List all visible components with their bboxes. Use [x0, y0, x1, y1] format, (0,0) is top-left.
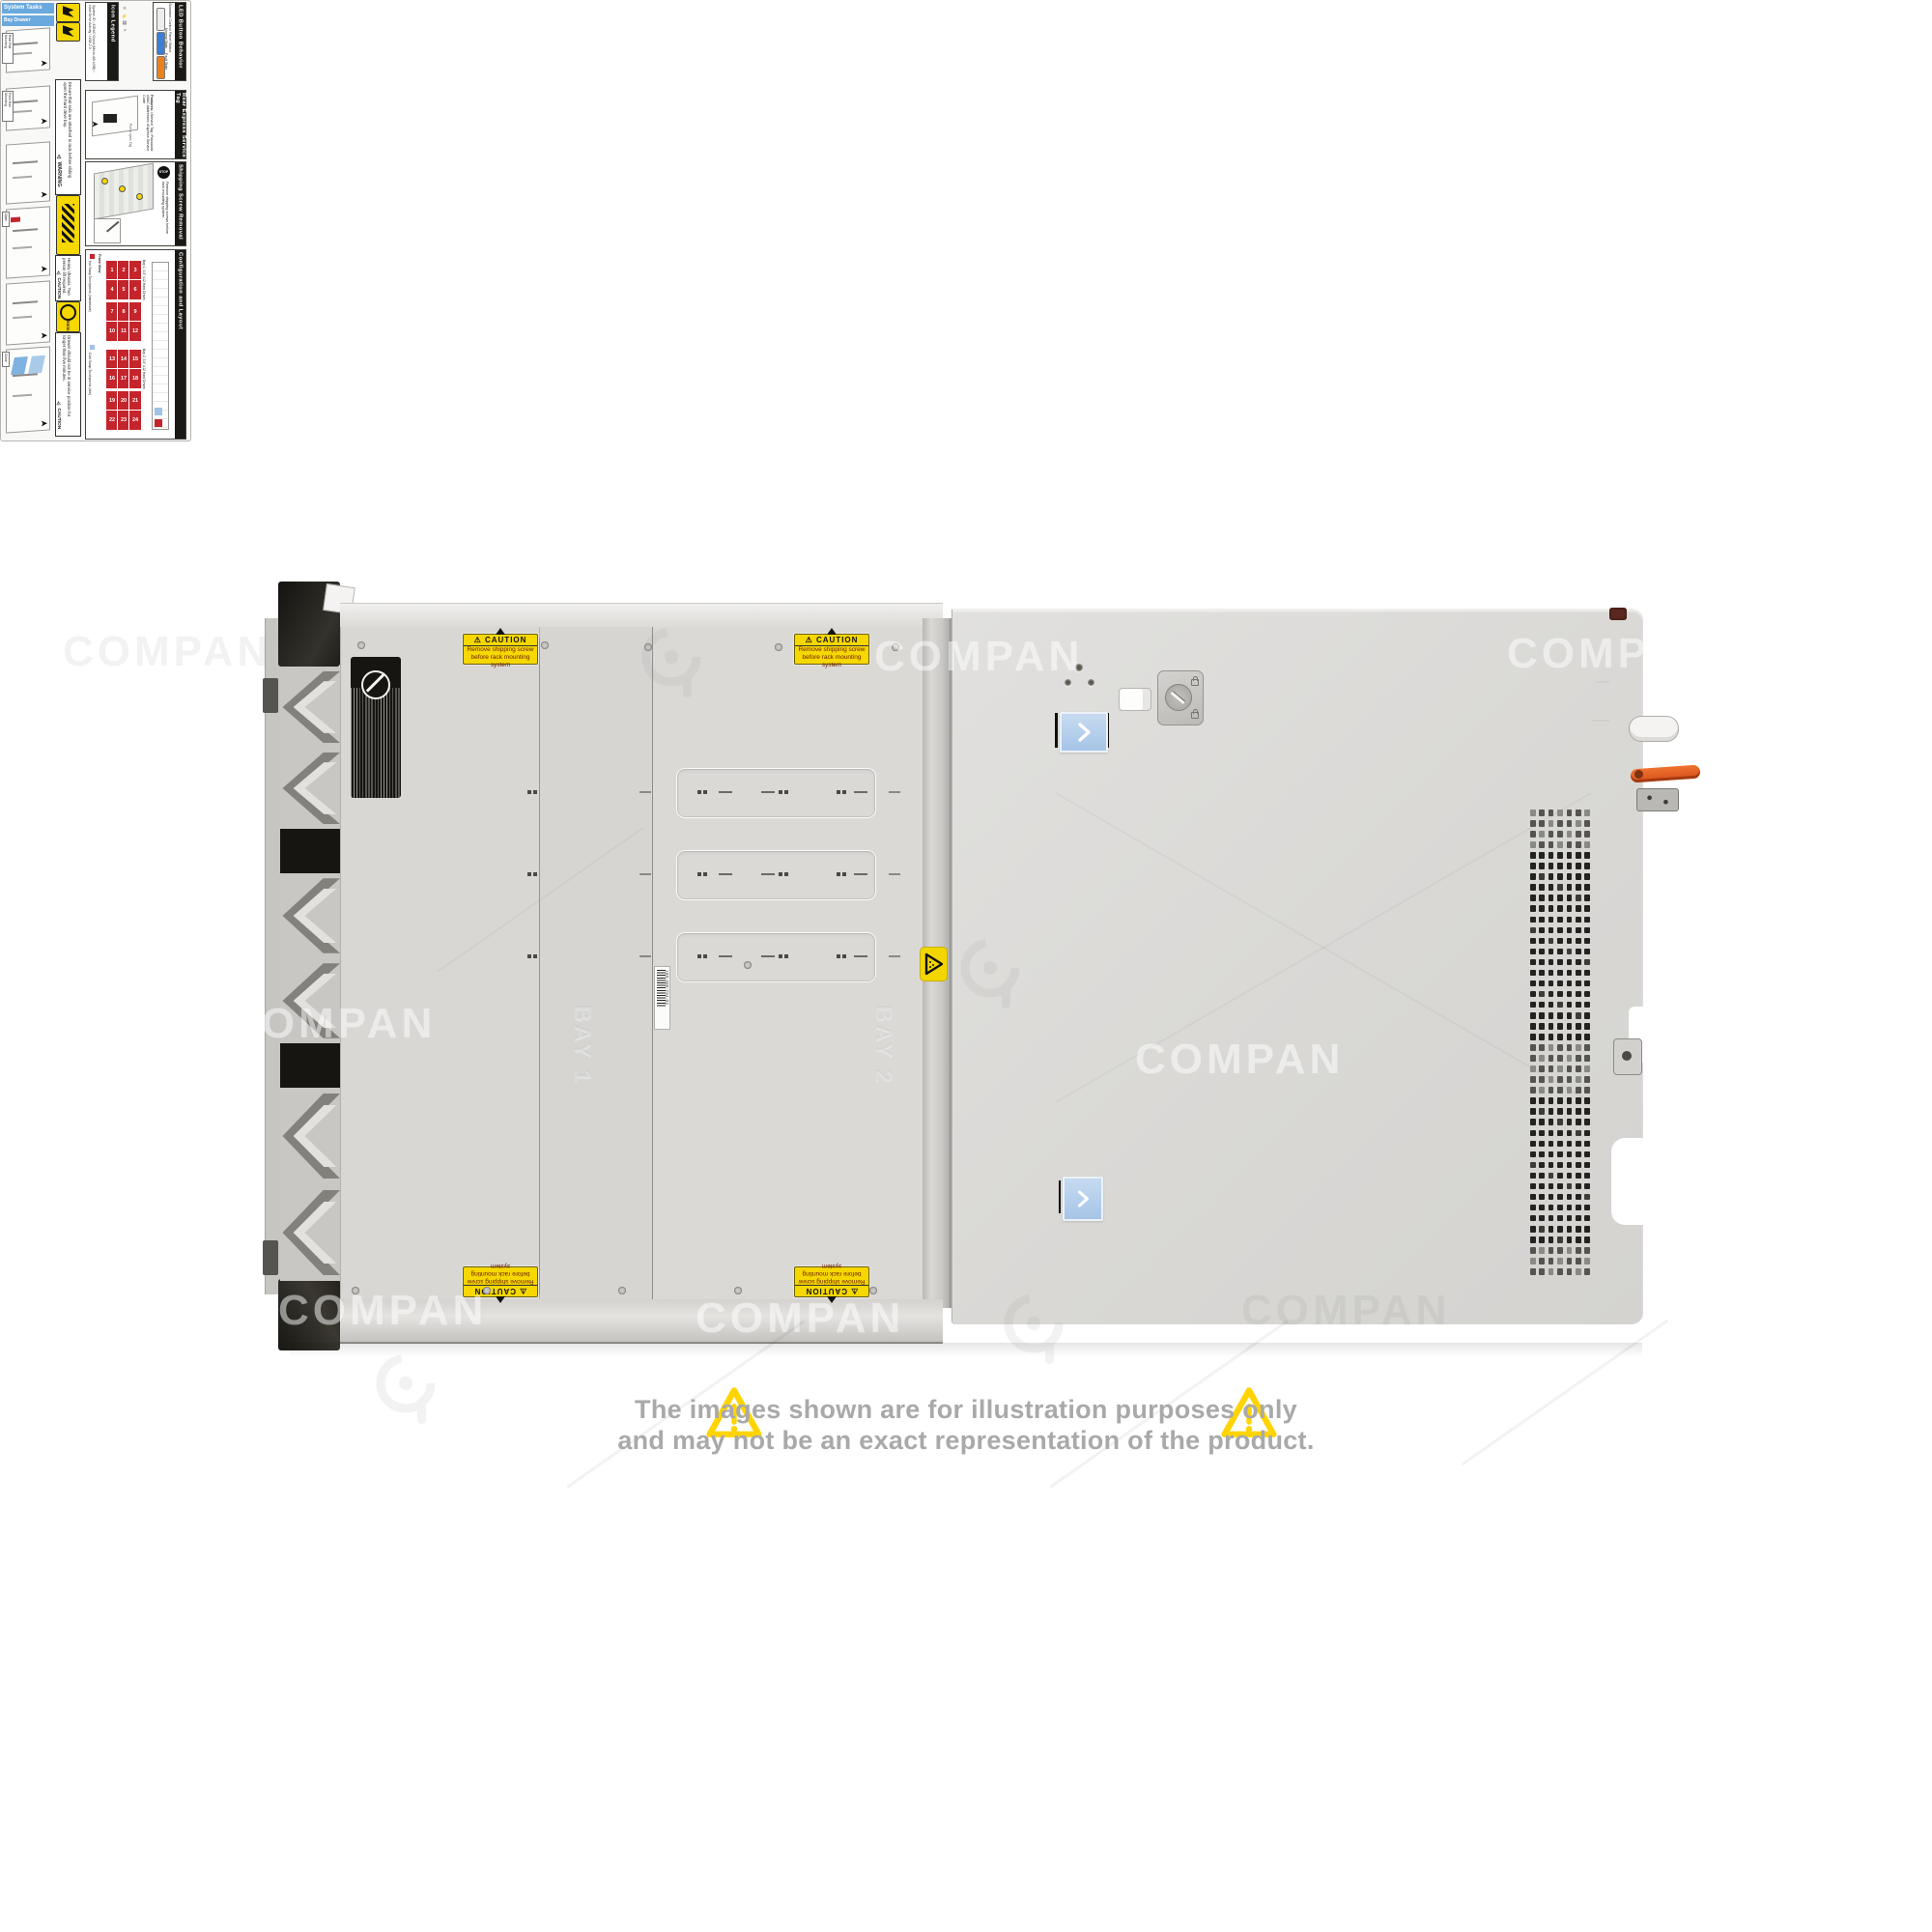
vent-hole — [1576, 1258, 1581, 1264]
vent-hole — [1539, 831, 1545, 838]
vent-hole — [1576, 852, 1581, 859]
vent-hole — [1557, 1034, 1563, 1040]
vent-hole — [1539, 970, 1545, 977]
vent-hole — [1530, 1108, 1536, 1115]
vent-hole — [1584, 841, 1590, 848]
latch-separator — [280, 829, 340, 873]
vent-hole — [1557, 1268, 1563, 1275]
vent-hole — [1576, 905, 1581, 912]
vent-hole — [1539, 1130, 1545, 1137]
vent-hole — [1567, 1173, 1573, 1179]
vent-hole — [1567, 917, 1573, 923]
vent-dash — [761, 791, 775, 793]
bay2-emboss: BAY 2 — [869, 1005, 896, 1085]
vent-hole — [1548, 1173, 1554, 1179]
vent-hole — [1557, 1162, 1563, 1169]
vent-hole — [1539, 1258, 1545, 1264]
vent-hole — [1584, 863, 1590, 869]
vent-hole — [1530, 820, 1536, 827]
screw — [869, 1287, 877, 1294]
arrow-glyph: ➤ — [41, 419, 47, 428]
vent-hole — [1548, 863, 1554, 869]
vent-hole — [1530, 1012, 1536, 1019]
vent-hole — [1576, 970, 1581, 977]
watermark-logo-icon — [633, 618, 710, 710]
vent-hole — [1539, 810, 1545, 816]
vent-hole — [1539, 1012, 1545, 1019]
vent-hole — [1548, 980, 1554, 987]
vent-hole — [1557, 1173, 1563, 1179]
vent-hole — [1567, 1215, 1573, 1222]
vent-hole — [1539, 938, 1545, 945]
caution-shipping-screw-label: ⚠ CAUTION Remove shipping screw before r… — [463, 634, 538, 665]
led-behavior-box: LED Button Behavior Standard Control Pan… — [153, 2, 186, 81]
vent-hole — [1567, 1108, 1573, 1115]
vent-hole — [1548, 905, 1554, 912]
vent-hole — [1548, 884, 1554, 891]
vent-hole — [1567, 1141, 1573, 1148]
vent-hole — [1567, 863, 1573, 869]
alignment-hole — [1088, 679, 1094, 686]
vent-dot — [784, 954, 788, 958]
drive-latch — [280, 667, 340, 748]
vent-dot — [697, 872, 701, 876]
vent-hole — [1548, 1215, 1554, 1222]
vent-hole — [1584, 852, 1590, 859]
vent-hole — [1539, 1141, 1545, 1148]
vent-hole — [1567, 884, 1573, 891]
vent-hole — [1584, 1194, 1590, 1201]
chassis-shadow — [290, 1343, 1642, 1356]
vent-dot — [527, 872, 531, 876]
panel-seam — [539, 638, 540, 1294]
vent-hole — [1530, 991, 1536, 998]
vent-hole — [1567, 980, 1573, 987]
vent-hole — [1567, 970, 1573, 977]
screw — [744, 961, 752, 969]
vent-dot — [533, 872, 537, 876]
sketch-line — [13, 42, 38, 45]
vent-hole — [1576, 810, 1581, 816]
chevron-right-icon — [1076, 1189, 1090, 1208]
vent-hole — [1584, 1023, 1590, 1030]
vent-hole — [1584, 1151, 1590, 1158]
cover-release-touchpoint — [1060, 712, 1108, 753]
vent-hole — [1539, 927, 1545, 934]
vent-hole — [1584, 1162, 1590, 1169]
vent-hole — [1567, 1076, 1573, 1083]
vent-hole — [1548, 1023, 1554, 1030]
vent-hole — [1539, 1162, 1545, 1169]
label-pointer — [496, 628, 505, 635]
icon-legend-box: Icon Legend System ID \ iDRAC Direct (Mi… — [85, 2, 119, 81]
vent-hole — [1576, 884, 1581, 891]
vent-hole — [1548, 873, 1554, 880]
vent-hole — [1548, 970, 1554, 977]
vent-hole — [1548, 1162, 1554, 1169]
vent-hole — [1530, 1141, 1536, 1148]
vent-hole — [1584, 1268, 1590, 1275]
vent-hole — [1539, 1268, 1545, 1275]
vent-hole — [1530, 1258, 1536, 1264]
vent-hole — [1576, 1012, 1581, 1019]
vent-dash — [719, 873, 732, 875]
cover-mark — [1596, 681, 1609, 683]
vent-hole — [1530, 1162, 1536, 1169]
vent-hole — [1539, 905, 1545, 912]
vent-hole — [1548, 949, 1554, 955]
vent-dot — [837, 790, 840, 794]
restriction-circle-icon — [361, 670, 390, 699]
vent-hole — [1539, 884, 1545, 891]
watermark-text: COMPAN — [696, 1294, 904, 1343]
vent-hole — [1548, 1151, 1554, 1158]
vent-hole — [1530, 1183, 1536, 1190]
vent-hole — [1557, 1119, 1563, 1125]
vent-hole — [1576, 895, 1581, 901]
rear-handle — [1629, 716, 1679, 742]
vent-hole — [1557, 980, 1563, 987]
vent-hole — [1584, 1087, 1590, 1094]
vent-hole — [1557, 927, 1563, 934]
vent-hole — [1548, 1055, 1554, 1062]
vent-dot — [842, 872, 846, 876]
vent-hole — [1567, 1002, 1573, 1009]
vent-hole — [1548, 1205, 1554, 1211]
vent-dot — [527, 790, 531, 794]
vent-hole — [1567, 831, 1573, 838]
vent-hole — [1557, 820, 1563, 827]
vent-hole — [1567, 991, 1573, 998]
vent-hole — [1567, 1044, 1573, 1051]
vent-hole — [1576, 1076, 1581, 1083]
vent-hole — [1567, 1055, 1573, 1062]
vent-hole — [1530, 917, 1536, 923]
vent-hole — [1576, 1108, 1581, 1115]
caution-drawer-text: ⚠ CAUTIONDrawer should not be in service… — [55, 332, 81, 437]
vent-hole — [1576, 1002, 1581, 1009]
lever-pivot — [1634, 770, 1643, 779]
vent-hole — [1557, 938, 1563, 945]
vent-hole — [1584, 1076, 1590, 1083]
step-caption: Rear Rail Mounting — [2, 33, 14, 64]
vent-hole — [1576, 1173, 1581, 1179]
screw — [618, 1287, 626, 1294]
vent-hole — [1584, 938, 1590, 945]
arrow-glyph: ➤ — [41, 331, 47, 340]
vent-hole — [1576, 1023, 1581, 1030]
cable-clip — [1636, 788, 1679, 811]
vent-hole — [1530, 1065, 1536, 1072]
sketch-line — [13, 52, 32, 55]
keylock-dial — [1165, 684, 1192, 711]
vent-hole — [1584, 1065, 1590, 1072]
watermark-logo-icon — [995, 1285, 1072, 1377]
vent-hole — [1539, 1173, 1545, 1179]
vent-hole — [1567, 1065, 1573, 1072]
vent-hole — [1557, 1012, 1563, 1019]
vent-hole — [1548, 1002, 1554, 1009]
vent-hole — [1530, 873, 1536, 880]
vent-hole — [1530, 1130, 1536, 1137]
vent-hole — [1539, 1205, 1545, 1211]
vent-hole — [1548, 1194, 1554, 1201]
vent-hole — [1539, 863, 1545, 869]
sketch-line — [13, 110, 32, 113]
vent-hole — [1530, 895, 1536, 901]
step-sketch: ➤ — [6, 346, 50, 433]
vent-hole — [1567, 949, 1573, 955]
vent-hole — [1530, 1205, 1536, 1211]
thumbscrew — [1609, 608, 1627, 620]
caution-heavy-text: ⚠ CAUTIONHeavy chassis. Two person lift … — [55, 255, 81, 301]
vent-hole — [1530, 1044, 1536, 1051]
drive-number-cell: 18 — [128, 368, 142, 389]
vent-hole — [1557, 949, 1563, 955]
vent-hole — [1539, 1044, 1545, 1051]
drawer-release-touchpoint — [1063, 1177, 1103, 1221]
vent-hole — [1584, 895, 1590, 901]
screwdriver-sketch — [94, 218, 121, 243]
vent-hole — [1548, 1034, 1554, 1040]
tag-sketch — [103, 114, 117, 123]
vent-hole — [1584, 1034, 1590, 1040]
vent-hole — [1530, 1215, 1536, 1222]
vent-hole — [1557, 1247, 1563, 1254]
banner-bay-drawer: Bay Drawer Operation — [2, 15, 54, 26]
screw-dot — [136, 193, 143, 200]
vent-hole — [1539, 1215, 1545, 1222]
vent-hole — [1539, 1055, 1545, 1062]
vent-hole — [1584, 1130, 1590, 1137]
vent-hole — [1548, 1183, 1554, 1190]
vent-hole — [1548, 1087, 1554, 1094]
drive-number-cell: 9 — [128, 301, 142, 323]
vent-hole — [1548, 1012, 1554, 1019]
drive-number-cell: 3 — [128, 260, 142, 281]
vent-hole — [1557, 1097, 1563, 1104]
vent-hole — [1557, 810, 1563, 816]
drive-latch — [280, 873, 340, 958]
vent-hole — [1567, 1247, 1573, 1254]
vent-hole — [1530, 1097, 1536, 1104]
vent-hole — [1576, 1087, 1581, 1094]
vent-hole — [1530, 841, 1536, 848]
vent-dot — [697, 790, 701, 794]
vent-dot — [527, 954, 531, 958]
latch-separator — [280, 1043, 340, 1088]
vent-hole — [1567, 1119, 1573, 1125]
vent-hole — [1576, 980, 1581, 987]
vent-hole — [1567, 810, 1573, 816]
rear-service-tag-box: Rear Express Service Tag ➤ Features: •Se… — [85, 90, 186, 159]
vent-hole — [1539, 1065, 1545, 1072]
vent-hole — [1539, 1119, 1545, 1125]
vent-hole — [1530, 905, 1536, 912]
vent-hole — [1548, 1119, 1554, 1125]
vent-hole — [1584, 884, 1590, 891]
vent-hole — [1530, 1002, 1536, 1009]
keylock-slot — [1171, 691, 1186, 704]
vent-hole — [1530, 938, 1536, 945]
vent-dash — [854, 791, 867, 793]
vent-hole — [1530, 1236, 1536, 1243]
arrow-glyph: ➤ — [92, 120, 99, 128]
vent-hole — [1557, 1141, 1563, 1148]
vent-hole — [1539, 1034, 1545, 1040]
vent-hole — [1557, 1151, 1563, 1158]
vent-hole — [1548, 810, 1554, 816]
vent-hole — [1557, 873, 1563, 880]
pinch-hazard-icon — [56, 22, 80, 42]
watermark-text: COMPAN — [1507, 630, 1716, 678]
vent-hole — [1530, 1173, 1536, 1179]
vent-hole — [1584, 917, 1590, 923]
vent-hole — [1576, 1044, 1581, 1051]
vent-hole — [1576, 820, 1581, 827]
vent-hole — [1539, 1023, 1545, 1030]
vent-hole — [1548, 1097, 1554, 1104]
vent-dash — [889, 791, 900, 793]
vent-hole — [1530, 927, 1536, 934]
vent-hole — [1576, 1119, 1581, 1125]
vent-hole — [1539, 1183, 1545, 1190]
vent-dot — [703, 954, 707, 958]
vent-hole — [1539, 917, 1545, 923]
vent-hole — [1548, 1141, 1554, 1148]
barcode-label: 100-400-294-03 — [654, 966, 670, 1030]
vent-hole — [1530, 1268, 1536, 1275]
front-drive-latch-strip — [280, 667, 340, 1281]
drive-number-cell: 6 — [128, 279, 142, 300]
vent-hole — [1539, 949, 1545, 955]
sketch-line — [13, 393, 32, 396]
arrow-glyph: ➤ — [41, 190, 47, 199]
watermark-text: COMPAN — [874, 633, 1083, 681]
vent-hole — [1530, 1194, 1536, 1201]
vent-hole — [1584, 820, 1590, 827]
caution-shipping-screw-label: ⚠ CAUTION Remove shipping screw before r… — [794, 1266, 869, 1297]
chevron-right-icon — [1076, 723, 1092, 742]
vent-dash — [719, 791, 732, 793]
vent-hole — [1557, 863, 1563, 869]
vent-dash — [639, 873, 651, 875]
vent-hole — [1584, 1097, 1590, 1104]
vent-hole — [1557, 959, 1563, 966]
watermark-text: COMPAN — [1135, 1036, 1344, 1084]
vent-hole — [1584, 1226, 1590, 1233]
vent-hole — [1548, 917, 1554, 923]
vent-hole — [1530, 1087, 1536, 1094]
vent-hole — [1530, 1119, 1536, 1125]
screw — [734, 1287, 742, 1294]
vent-hole — [1557, 1183, 1563, 1190]
vent-hole — [1576, 1183, 1581, 1190]
vent-hole — [1567, 1194, 1573, 1201]
vent-hole — [1557, 1108, 1563, 1115]
vent-hole — [1576, 1226, 1581, 1233]
vent-hole — [1576, 1034, 1581, 1040]
vent-hole — [1548, 1258, 1554, 1264]
vent-hole — [1567, 905, 1573, 912]
vent-hole — [1576, 991, 1581, 998]
step-caption: Open — [2, 212, 10, 227]
vent-hole — [1548, 831, 1554, 838]
label-pointer — [827, 628, 837, 635]
vent-hole — [1530, 1055, 1536, 1062]
bezel-latch-tab — [263, 1240, 278, 1275]
shipping-screw-box: Shipping Screw Removal STOP Remove shipp… — [85, 161, 186, 246]
drawer-panel-narrow — [539, 627, 653, 1299]
vent-hole — [1548, 1226, 1554, 1233]
vent-hole — [1584, 949, 1590, 955]
vent-hole — [1584, 1247, 1590, 1254]
vent-hole — [1576, 1151, 1581, 1158]
watermark-text: COMPAN — [63, 628, 271, 676]
warning-rails-text: ⚠ WARNINGEnsure that rails are attached … — [55, 79, 81, 195]
sketch-line — [13, 300, 38, 304]
features-list: Features: •Service Tag •Password •MAC Ad… — [142, 95, 154, 153]
vent-hole — [1584, 959, 1590, 966]
vent-hole — [1584, 980, 1590, 987]
sketch-line — [13, 245, 32, 248]
vent-dot — [842, 954, 846, 958]
vent-hole — [1557, 1205, 1563, 1211]
vent-hole — [1557, 1065, 1563, 1072]
vent-hole — [1584, 991, 1590, 998]
vent-hole — [1584, 810, 1590, 816]
vent-hole — [1576, 1194, 1581, 1201]
vent-dash — [761, 955, 775, 957]
vent-hole — [1548, 841, 1554, 848]
vent-dot — [842, 790, 846, 794]
watermark-logo-icon — [952, 929, 1029, 1021]
cover-keylock — [1157, 670, 1204, 725]
legend-glyphs: ⚛ ⚡ ▤ ⌕ — [122, 6, 128, 73]
vent-hole — [1584, 927, 1590, 934]
vent-hole — [1567, 1258, 1573, 1264]
arrow-glyph: ➤ — [41, 59, 47, 68]
vent-hole — [1576, 1205, 1581, 1211]
vent-hole — [1539, 1097, 1545, 1104]
vent-dash — [854, 873, 867, 875]
step-sketch: ➤ — [6, 141, 50, 204]
vent-hole — [1557, 1044, 1563, 1051]
vent-hole — [1539, 1108, 1545, 1115]
service-instructions-label: System Tasks Bay Drawer Operation ➤Rear … — [0, 0, 191, 441]
vent-dash — [889, 873, 900, 875]
vent-hole — [1567, 959, 1573, 966]
vent-hole — [1576, 1065, 1581, 1072]
vent-hole — [1548, 1076, 1554, 1083]
bay1-emboss: BAY 1 — [568, 1005, 595, 1085]
vent-hole — [1548, 820, 1554, 827]
vent-hole — [1576, 1097, 1581, 1104]
vent-hole — [1557, 1130, 1563, 1137]
edge-notch — [1611, 1138, 1646, 1225]
vent-dot — [779, 872, 782, 876]
vent-hole — [1576, 959, 1581, 966]
vent-hole — [1584, 1141, 1590, 1148]
vent-hole — [1539, 1076, 1545, 1083]
vent-hole — [1557, 1023, 1563, 1030]
vent-hole — [1557, 1194, 1563, 1201]
blue-door-sketch — [11, 356, 28, 375]
vent-hole — [1530, 1226, 1536, 1233]
vent-hole — [1584, 1236, 1590, 1243]
drive-latch — [280, 1184, 340, 1281]
vent-hole — [1567, 1087, 1573, 1094]
